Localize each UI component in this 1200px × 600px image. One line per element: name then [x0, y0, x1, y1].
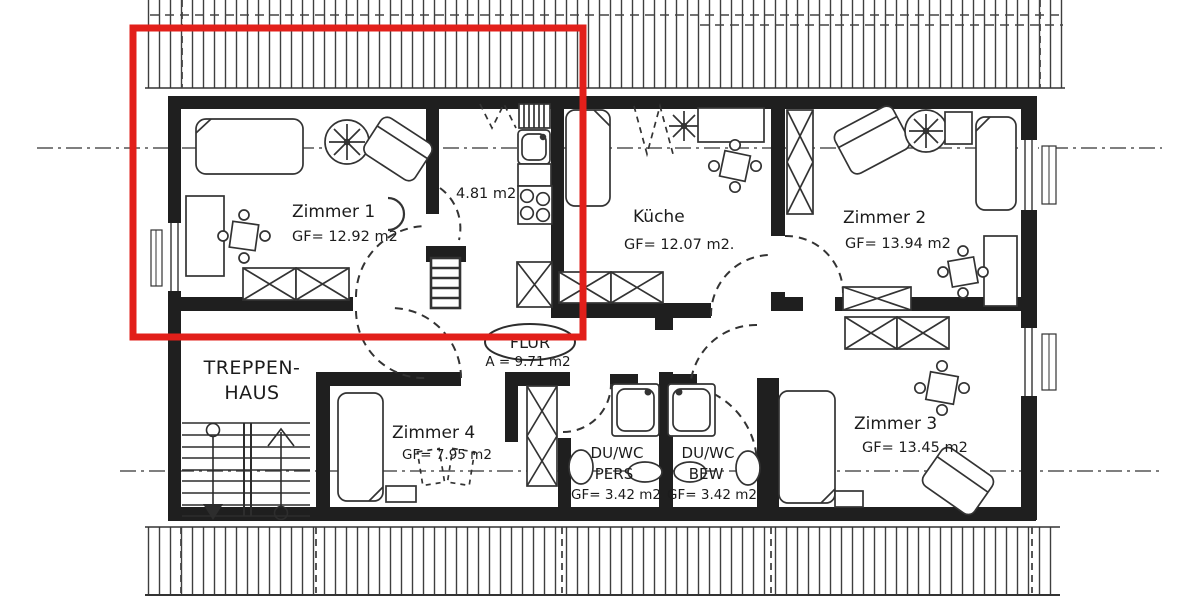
shower-duwc-bew: [668, 384, 715, 436]
label-zimmer1-area: GF= 12.92 m2: [292, 229, 398, 245]
window-right-top: [1019, 140, 1056, 210]
label-flur-area: A = 9.71 m2: [485, 354, 570, 370]
label-kitchenette-area: 4.81 m2: [456, 186, 516, 202]
table-zimmer1: [218, 210, 270, 263]
stove-icon: [518, 186, 552, 224]
bed-zimmer2: [976, 117, 1016, 210]
roof-hatch-top: [145, 0, 1065, 88]
bed-zimmer1: [196, 119, 303, 174]
label-duwc-bew-area: GF= 3.42 m2: [667, 487, 757, 503]
ceiling-fan-icon-zimmer2: [905, 110, 947, 152]
label-treppenhaus-line1: TREPPEN-: [203, 357, 301, 379]
armchair-zimmer2: [832, 103, 913, 176]
label-kueche-name: Küche: [633, 207, 685, 227]
window-left: [151, 223, 183, 291]
label-zimmer2-name: Zimmer 2: [843, 208, 926, 228]
window-right-bottom: [1019, 328, 1056, 396]
wc-duwc-bew: [736, 451, 760, 485]
label-duwc-pers-line1: DU/WC: [591, 444, 644, 462]
label-zimmer4-name: Zimmer 4: [392, 423, 475, 443]
nightstand-zimmer3: [835, 491, 863, 507]
dresser-zimmer1: [243, 268, 349, 300]
table-zimmer3: [915, 361, 969, 415]
kitchen-counter: [517, 104, 552, 307]
shelf-zimmer2: [945, 112, 972, 144]
floorplan-page: Zimmer 1 GF= 12.92 m2 4.81 m2 Küche GF= …: [0, 0, 1200, 600]
cabinets-kueche: [559, 272, 663, 303]
label-kueche-area: GF= 12.07 m2.: [624, 237, 734, 253]
label-duwc-bew-line1: DU/WC: [682, 444, 735, 462]
table-zimmer2: [938, 246, 988, 298]
floorplan-drawing: Zimmer 1 GF= 12.92 m2 4.81 m2 Küche GF= …: [0, 0, 1200, 600]
roof-hatch-bottom: [145, 527, 1060, 595]
ladder-icon: [431, 258, 460, 308]
label-duwc-pers-area: GF= 3.42 m2: [571, 487, 661, 503]
bed-zimmer4: [338, 393, 383, 501]
desk-zimmer2: [984, 236, 1017, 306]
nightstand-zimmer4: [386, 486, 416, 502]
wc-duwc-pers: [569, 450, 593, 484]
label-duwc-pers-line2: PERS: [595, 465, 633, 483]
table-kueche: [698, 108, 764, 142]
label-zimmer4-area: GF= 7.95 m2: [402, 447, 492, 463]
dresser-zimmer3: [845, 317, 949, 349]
bed-kueche: [566, 110, 610, 206]
plant-icon-kueche: [669, 111, 699, 141]
door-leaf-arc: [388, 198, 404, 230]
wardrobe-dashed-kueche: [634, 106, 673, 154]
wardrobe-flur: [527, 386, 557, 486]
label-treppenhaus-line2: HAUS: [224, 382, 279, 404]
label-duwc-bew-line2: BEW: [689, 465, 724, 483]
label-zimmer1-name: Zimmer 1: [292, 202, 375, 222]
bed-zimmer3: [779, 391, 835, 503]
label-zimmer3-area: GF= 13.45 m2: [862, 440, 968, 456]
ceiling-fan-icon-zimmer1: [325, 120, 369, 164]
dresser-zimmer2: [843, 287, 911, 310]
armchair-zimmer1: [361, 114, 435, 184]
wardrobe-zimmer2: [787, 110, 813, 214]
shower-duwc-pers: [612, 384, 659, 436]
label-zimmer2-area: GF= 13.94 m2: [845, 236, 951, 252]
label-zimmer3-name: Zimmer 3: [854, 414, 937, 434]
